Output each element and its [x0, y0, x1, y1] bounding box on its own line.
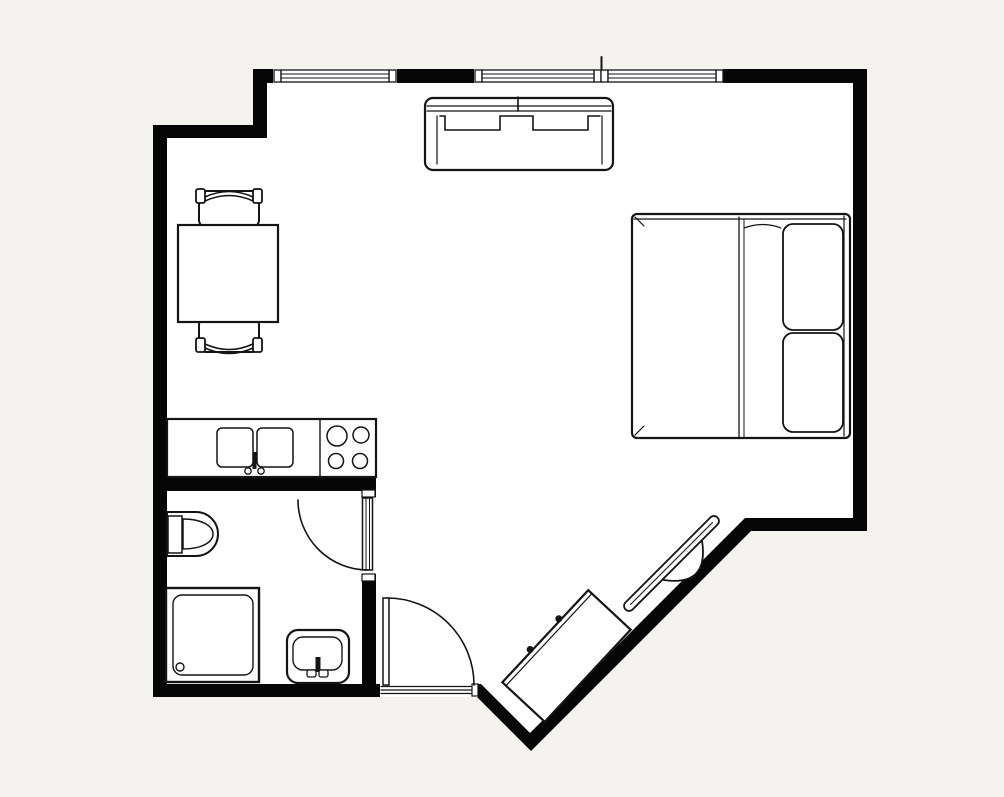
floor-plan-canvas	[0, 0, 1004, 797]
sofa	[425, 97, 613, 170]
window-c	[601, 57, 723, 82]
partition-bathroom-top-wall	[167, 478, 376, 491]
window-b	[475, 70, 601, 82]
entry-doorway	[380, 684, 478, 697]
kitchen-counter	[167, 419, 376, 477]
dining-chair-top	[196, 189, 262, 227]
window-a	[274, 70, 396, 82]
floor-plan-drawing	[0, 0, 1004, 797]
dining-table	[178, 225, 278, 322]
shower	[166, 588, 259, 682]
toilet	[167, 512, 218, 556]
dining-chair-bottom	[196, 318, 262, 354]
bathroom-sink	[287, 630, 349, 683]
bed	[632, 214, 850, 438]
